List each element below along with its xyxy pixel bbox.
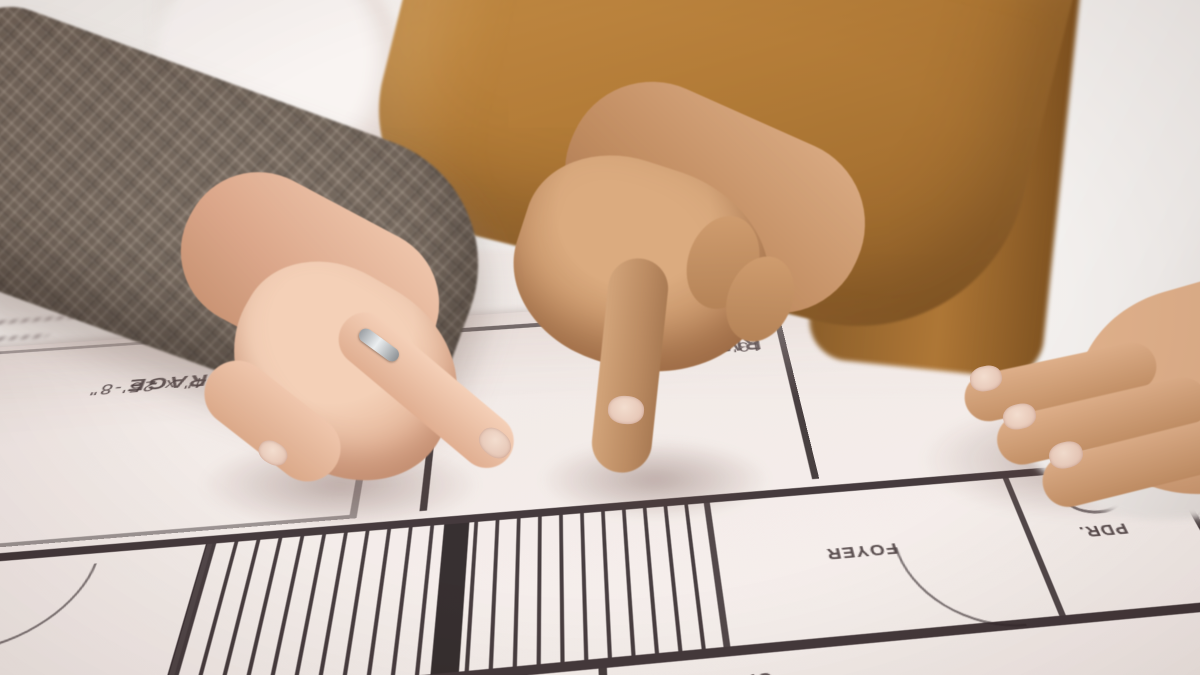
- stairs-up: [465, 504, 718, 672]
- hand-shadow: [540, 440, 770, 520]
- powder-room-label: PDR.: [1075, 519, 1131, 540]
- fingernail: [607, 395, 645, 425]
- foyer-label: FOYER: [824, 539, 900, 563]
- room-bath-cell: [0, 545, 199, 675]
- stairs-down: [160, 525, 439, 675]
- door-arc: [895, 539, 1027, 636]
- photo-scene: GARAGE 21'-4" x 25'-8" RM. 13'-0" x 12'-…: [0, 0, 1200, 675]
- door-arc: [0, 563, 97, 651]
